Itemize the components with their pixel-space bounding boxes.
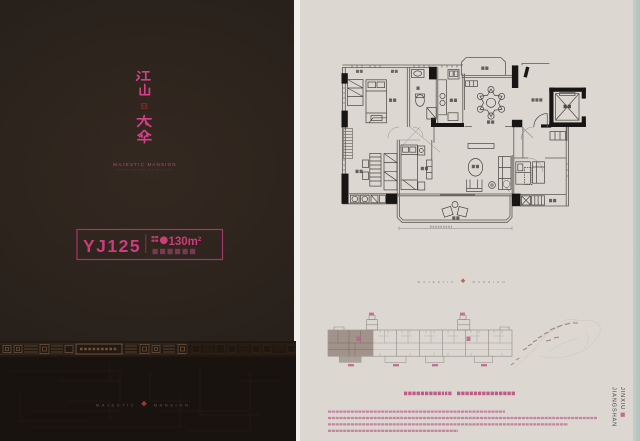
svg-text:JIANGSHAN: JIANGSHAN — [611, 387, 617, 427]
svg-text:MANSION: MANSION — [472, 280, 507, 284]
svg-text:JINXIU: JINXIU — [619, 387, 625, 410]
svg-text:MAJESTIC: MAJESTIC — [418, 280, 457, 284]
